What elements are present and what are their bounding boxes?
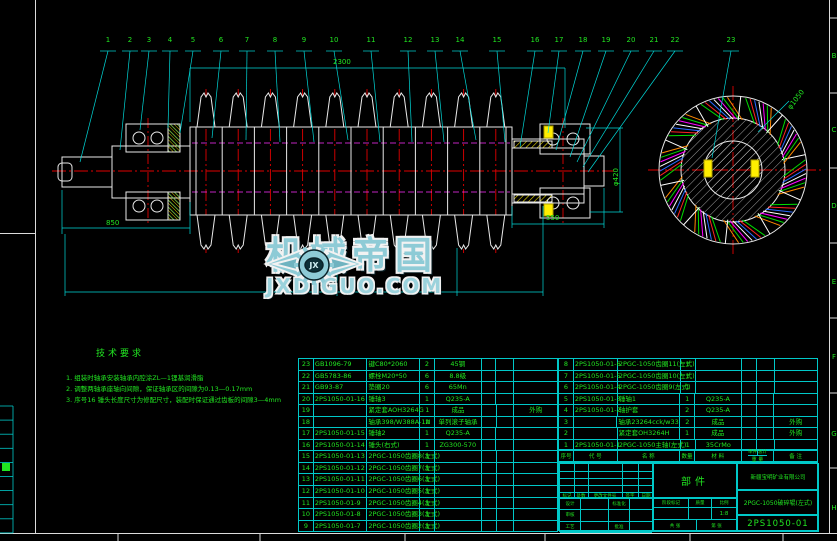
bom-cell-no: 19 (299, 405, 314, 416)
bom-cell-name: 2PGC-1050齿圈5(左式) (367, 486, 420, 497)
bom-cell-name: 2PGC-1050齿圈9(左式) (618, 382, 681, 393)
bom-row: 21GB93-87垫圈20665Mn (299, 382, 557, 394)
bom-cell-material: 45钢 (435, 359, 482, 370)
bom-cell-w1 (482, 463, 497, 474)
bom-cell-w1 (742, 394, 757, 405)
bom-row: 23GB1096-79键C80*2060245钢 (299, 359, 557, 371)
bom-cell-code: GB93-87 (314, 382, 368, 393)
bom-cell-name: 轴承398/W388A-1N (367, 417, 420, 428)
bom-cell-qty: 1 (420, 509, 435, 520)
bom-cell-w2 (497, 451, 515, 462)
bom-cell-no: 21 (299, 382, 314, 393)
bom-cell-qty: 1 (420, 498, 435, 509)
bom-table-left: 23GB1096-79键C80*2060245钢22GB5783-86螺栓M20… (298, 358, 558, 532)
bom-header-row: 序号 代 号 名 称 数量 材 料 单件 总计 重 量 备 注 (558, 450, 818, 462)
drawing-number: 2PS1050-01 (737, 515, 819, 532)
bom-cell-w2 (497, 474, 515, 485)
bom-cell-w2 (497, 498, 515, 509)
bom-cell-code: 2PS1050-01-14 (314, 440, 368, 451)
bom-cell-code: 2PS1050-01-9 (314, 498, 367, 509)
bom-cell-material (696, 382, 742, 393)
bom-cell-code: 2PS1050-01-16 (314, 394, 368, 405)
bom-row: 18轴承398/W388A-1N2单列滚子轴承 (299, 417, 557, 429)
bom-header-weight: 单件 总计 重 量 (742, 451, 775, 461)
bom-row: 82PS1050-01-62PGC-1050齿圈11(左式)1 (559, 359, 817, 371)
bom-cell-qty: 1 (681, 382, 696, 393)
bom-header-material: 材 料 (695, 451, 742, 461)
bom-cell-remark (514, 359, 557, 370)
bom-cell-name: 紧定套OH3264H (618, 428, 681, 439)
bom-cell-w2 (497, 405, 515, 416)
bom-cell-code: 2PS1050-01-5 (574, 371, 618, 382)
bom-cell-name: 2PGC-1050齿圈4(左式) (367, 498, 420, 509)
bom-cell-no: 7 (559, 371, 574, 382)
bom-cell-qty: 1 (420, 486, 435, 497)
bom-cell-qty: 1 (681, 371, 696, 382)
scale-value: 1:8 (712, 508, 736, 519)
bom-cell-no: 3 (559, 417, 574, 428)
bom-cell-remark (514, 440, 557, 451)
bom-cell-qty: 1 (420, 474, 435, 485)
dim-left-span: 850 (106, 219, 119, 227)
bom-cell-w1 (482, 394, 497, 405)
watermark: JX 机械帝国 JXDIGUO.COM (262, 234, 443, 296)
bom-row: 42PS1050-01-2轴护套2Q235-A (559, 405, 817, 417)
bom-cell-w1 (482, 474, 497, 485)
bom-row: 142PS1050-01-122PGC-1050齿圈7(左式)1 (299, 463, 557, 475)
balloon-number: 11 (364, 36, 378, 44)
bom-cell-remark (775, 359, 817, 370)
bom-cell-code: GB5783-86 (314, 371, 368, 382)
bom-cell-name: 2PGC-1050齿圈2(左式) (367, 521, 420, 533)
sign-label: 设计 (560, 499, 581, 509)
bom-cell-no: 8 (559, 359, 574, 370)
bom-cell-name: 2PGC-1050齿圈7(左式) (367, 463, 420, 474)
bom-cell-remark (774, 394, 817, 405)
bom-cell-no: 14 (299, 463, 314, 474)
bom-cell-qty: 2 (420, 417, 435, 428)
bom-cell-code: 2PS1050-01-10 (314, 486, 367, 497)
bom-row: 172PS1050-01-15锤轴21Q235-A (299, 428, 557, 440)
bom-header-no: 序号 (559, 451, 574, 461)
bom-cell-name: 垫圈20 (367, 382, 420, 393)
bom-cell-material (696, 371, 742, 382)
bom-cell-material: 8.8级 (435, 371, 482, 382)
balloon-number: 14 (453, 36, 467, 44)
balloon-number: 22 (668, 36, 682, 44)
drawing-title: 2PGC-1050破碎辊(左式) (737, 490, 819, 515)
zone-letter: C (830, 126, 837, 134)
bom-cell-w2 (496, 382, 514, 393)
technical-notes-title: 技术要求 (96, 346, 281, 359)
bom-cell-w2 (757, 382, 775, 393)
bom-cell-name: 螺栓M20*50 (367, 371, 420, 382)
bom-row: 62PS1050-01-42PGC-1050齿圈9(左式)1 (559, 382, 817, 394)
bom-cell-w2 (496, 428, 514, 439)
stage-label: 阶段标记 (654, 499, 689, 507)
bom-cell-w2 (497, 417, 515, 428)
bom-cell-remark (514, 486, 557, 497)
bom-row: 112PS1050-01-92PGC-1050齿圈4(左式)1 (299, 498, 557, 510)
sign-label: 工艺 (560, 522, 581, 532)
balloon-number: 21 (647, 36, 661, 44)
bom-cell-qty: 1 (420, 440, 435, 451)
bom-row: 202PS1050-01-16锤轴31Q235-A (299, 394, 557, 406)
zone-letter: F (830, 353, 837, 361)
bom-cell-material: 单列滚子轴承 (435, 417, 482, 428)
bom-cell-name: 2PGC-1050齿圈11(左式) (618, 359, 681, 370)
bom-cell-qty: 2 (420, 359, 435, 370)
bom-row: 152PS1050-01-132PGC-1050齿圈8(左式)1 (299, 451, 557, 463)
bom-cell-no: 18 (299, 417, 314, 428)
bom-cell-code: 2PS1050-01-8 (314, 509, 367, 520)
sheet-number: 第 张 (697, 520, 736, 532)
bom-cell-material: Q235-A (695, 405, 742, 416)
bom-cell-code: 2PS1050-01-11 (314, 474, 367, 485)
bom-cell-material (435, 498, 482, 509)
zone-letter: H (830, 504, 837, 512)
bom-cell-code: 2PS1050-01-13 (314, 451, 367, 462)
technical-notes: 技术要求 1. 组装时轴承安装轴承内腔涂ZL—1锂基润滑脂2. 调整两轴承座轴向… (66, 346, 281, 406)
bom-cell-name: 锤轴3 (367, 394, 420, 405)
balloon-number: 4 (163, 36, 177, 44)
bom-cell-material: 成品 (695, 417, 742, 428)
bom-cell-name: 锤轴1 (618, 394, 680, 405)
bom-cell-material (435, 463, 482, 474)
bom-header-weight-total: 总计 (758, 449, 767, 455)
balloon-number: 8 (268, 36, 282, 44)
bom-cell-code: 2PS1050-01-3 (574, 394, 618, 405)
bom-cell-remark (514, 498, 557, 509)
bom-cell-w2 (497, 486, 515, 497)
bom-cell-remark (514, 474, 557, 485)
bom-cell-material: 成品 (695, 428, 742, 439)
bom-cell-w2 (497, 509, 515, 520)
bom-cell-w1 (482, 417, 497, 428)
bom-row: 52PS1050-01-3锤轴11Q235-A (559, 394, 817, 406)
bom-cell-w1 (482, 509, 497, 520)
bom-cell-w2 (497, 463, 515, 474)
bom-cell-w1 (482, 382, 497, 393)
bom-cell-code: 2PS1050-01-7 (314, 521, 367, 533)
bom-cell-w1 (482, 359, 497, 370)
bom-cell-remark: 外购 (514, 405, 557, 416)
bom-cell-qty: 2 (680, 405, 695, 416)
bom-cell-material: 成品 (435, 405, 482, 416)
dim-overall-top: 2300 (333, 58, 351, 66)
bom-cell-w1 (482, 451, 497, 462)
bom-cell-no: 10 (299, 509, 314, 520)
bom-cell-w2 (757, 405, 775, 416)
bom-cell-material (435, 474, 482, 485)
balloon-number: 17 (552, 36, 566, 44)
bom-cell-no: 11 (299, 498, 314, 509)
dim-right-diameter: φ420 (612, 168, 620, 186)
bom-cell-w2 (757, 428, 775, 439)
bom-header-remark: 备 注 (774, 451, 817, 461)
bom-cell-remark (514, 509, 557, 520)
bom-cell-name: 2PGC-1050齿圈10(左式) (618, 371, 681, 382)
bom-cell-code: 2PS1050-01-2 (574, 405, 618, 416)
bom-cell-no: 2 (559, 428, 574, 439)
signature-grid: 设计标准化审核工艺批准 (559, 498, 653, 532)
bom-cell-no: 5 (559, 394, 574, 405)
bom-cell-qty: 6 (420, 382, 435, 393)
sign-label (609, 510, 630, 520)
bom-cell-w1 (742, 371, 757, 382)
bom-cell-w2 (757, 371, 775, 382)
bom-header-code: 代 号 (574, 451, 618, 461)
bom-cell-name: 紧定套AOH3264G (367, 405, 420, 416)
bom-row: 162PS1050-01-14锤头(右式)1ZG300-570 (299, 440, 557, 452)
bom-cell-remark (514, 428, 557, 439)
bom-cell-code (314, 417, 367, 428)
left-margin-mark (2, 463, 10, 471)
bom-row: 3轴承23264cck/w332成品外购 (559, 417, 817, 429)
bom-cell-w1 (482, 428, 497, 439)
bom-row: 122PS1050-01-102PGC-1050齿圈5(左式)1 (299, 486, 557, 498)
bom-cell-material (435, 509, 482, 520)
bom-cell-no: 13 (299, 474, 314, 485)
bom-cell-no: 20 (299, 394, 314, 405)
bom-cell-name: 轴承23264cck/w33 (617, 417, 680, 428)
bom-cell-no: 17 (299, 428, 314, 439)
part-type-label: 部件 (653, 463, 737, 498)
bom-cell-qty: 1 (420, 463, 435, 474)
balloon-number: 9 (297, 36, 311, 44)
bom-cell-no: 22 (299, 371, 314, 382)
bom-cell-remark: 外购 (774, 428, 817, 439)
bom-cell-w2 (497, 521, 515, 533)
bom-row: 92PS1050-01-72PGC-1050齿圈2(左式)1 (299, 521, 557, 533)
bom-cell-w1 (742, 405, 757, 416)
bom-cell-qty: 1 (680, 428, 695, 439)
bom-cell-name: 锤头(右式) (367, 440, 420, 451)
balloon-number: 18 (576, 36, 590, 44)
bom-cell-name: 锤轴2 (367, 428, 420, 439)
bom-cell-remark (514, 463, 557, 474)
bom-header-name: 名 称 (618, 451, 681, 461)
bom-cell-remark (775, 382, 817, 393)
watermark-logo-gear-wings-icon: JX (262, 234, 366, 298)
bom-cell-w2 (496, 440, 514, 451)
bom-cell-remark (514, 521, 557, 533)
bom-cell-name: 轴护套 (618, 405, 680, 416)
bom-cell-code: GB1096-79 (314, 359, 368, 370)
watermark-monogram: JX (308, 261, 319, 270)
bom-cell-w2 (496, 371, 514, 382)
bom-row: 19紧定套AOH3264G1成品外购 (299, 405, 557, 417)
bom-cell-qty: 6 (420, 371, 435, 382)
bom-cell-w2 (496, 359, 514, 370)
bom-cell-qty: 1 (420, 451, 435, 462)
bom-header-qty: 数量 (680, 451, 695, 461)
balloon-number: 16 (528, 36, 542, 44)
bom-cell-remark (775, 371, 817, 382)
bom-cell-no: 16 (299, 440, 314, 451)
bom-cell-w1 (482, 440, 497, 451)
bom-cell-code: 2PS1050-01-12 (314, 463, 367, 474)
bom-cell-remark (514, 417, 557, 428)
bom-cell-code (574, 428, 618, 439)
bom-cell-w1 (482, 405, 497, 416)
bom-cell-no: 6 (559, 382, 574, 393)
bom-row: 72PS1050-01-52PGC-1050齿圈10(左式)1 (559, 371, 817, 383)
bom-cell-name: 键C80*2060 (367, 359, 420, 370)
bom-cell-code: 2PS1050-01-15 (314, 428, 368, 439)
bom-cell-w2 (757, 394, 775, 405)
bom-cell-name: 2PGC-1050齿圈8(左式) (367, 451, 420, 462)
bom-cell-material (435, 451, 482, 462)
sign-label: 批准 (609, 522, 630, 532)
bom-header-weight-unit: 单件 (748, 449, 758, 455)
balloon-number: 7 (240, 36, 254, 44)
balloon-number: 3 (142, 36, 156, 44)
zone-letter: E (830, 278, 837, 286)
sign-label: 审核 (560, 510, 581, 520)
bom-cell-remark: 外购 (774, 417, 817, 428)
bom-cell-no: 15 (299, 451, 314, 462)
bom-cell-remark (514, 394, 557, 405)
stage-grid: 阶段标记 质量 比例 1:8 共 张 第 张 (653, 498, 737, 532)
sign-label: 标准化 (609, 499, 630, 509)
balloon-number: 5 (186, 36, 200, 44)
technical-note-item: 2. 调整两轴承座轴向间隙，保证轴承区的间隙为0.13—0.17mm (66, 384, 281, 395)
balloon-number: 6 (214, 36, 228, 44)
bom-cell-w1 (482, 486, 497, 497)
bom-cell-qty: 2 (680, 417, 695, 428)
bom-cell-no: 9 (299, 521, 314, 533)
balloon-number: 15 (490, 36, 504, 44)
bom-cell-w1 (742, 428, 757, 439)
bom-cell-w1 (742, 417, 757, 428)
bom-cell-code (314, 405, 367, 416)
balloon-number: 10 (327, 36, 341, 44)
balloon-number: 20 (624, 36, 638, 44)
bom-cell-w1 (742, 382, 757, 393)
bom-cell-remark (514, 371, 557, 382)
cad-sheet: JX 机械帝国 JXDIGUO.COM 技术要求 1. 组装时轴承安装轴承内腔涂… (0, 0, 837, 541)
revision-grid: 标记处数更改文件号签字日期 (559, 463, 653, 498)
balloon-number: 12 (401, 36, 415, 44)
bom-cell-qty: 1 (420, 405, 435, 416)
balloon-number: 19 (599, 36, 613, 44)
balloon-number: 23 (724, 36, 738, 44)
sheet-total: 共 张 (654, 520, 697, 532)
bom-cell-material (435, 486, 482, 497)
bom-cell-qty: 1 (420, 394, 435, 405)
bom-cell-qty: 1 (420, 521, 435, 533)
bom-cell-w2 (757, 417, 775, 428)
technical-note-item: 3. 序号16 锤头长度尺寸为修配尺寸，装配时保证通过齿板的间隙3—4mm (66, 395, 281, 406)
bom-cell-qty: 1 (680, 394, 695, 405)
bom-cell-no: 12 (299, 486, 314, 497)
bom-cell-remark (774, 405, 817, 416)
bom-cell-w1 (482, 371, 497, 382)
bom-cell-code (574, 417, 618, 428)
bom-table-right: 82PS1050-01-62PGC-1050齿圈11(左式)172PS1050-… (558, 358, 818, 450)
bom-row: 102PS1050-01-82PGC-1050齿圈3(左式)1 (299, 509, 557, 521)
bom-cell-material: Q235-A (435, 394, 482, 405)
bom-cell-material: ZG300-570 (435, 440, 482, 451)
balloon-number: 1 (101, 36, 115, 44)
technical-note-item: 1. 组装时轴承安装轴承内腔涂ZL—1锂基润滑脂 (66, 373, 281, 384)
zone-letter: D (830, 202, 837, 210)
bom-cell-remark (514, 451, 557, 462)
company-name: 新疆宝明矿业有限公司 (737, 463, 819, 490)
bom-cell-name: 2PGC-1050齿圈3(左式) (367, 509, 420, 520)
bom-cell-qty: 1 (681, 359, 696, 370)
bom-cell-material (696, 359, 742, 370)
balloon-number: 13 (428, 36, 442, 44)
balloon-number: 2 (123, 36, 137, 44)
bom-cell-w1 (482, 521, 497, 533)
title-block: 标记处数更改文件号签字日期 设计标准化审核工艺批准 部件 阶段标记 质量 比例 … (558, 462, 818, 531)
bom-cell-no: 23 (299, 359, 314, 370)
weight-label: 质量 (689, 499, 712, 507)
bom-cell-material: 65Mn (435, 382, 482, 393)
bom-cell-w1 (742, 359, 757, 370)
bom-cell-w2 (496, 394, 514, 405)
bom-row: 2紧定套OH3264H1成品外购 (559, 428, 817, 440)
bom-cell-code: 2PS1050-01-6 (574, 359, 618, 370)
bom-cell-w2 (757, 359, 775, 370)
dim-right-span: 550 (546, 214, 559, 222)
bom-cell-material: Q235-A (435, 428, 482, 439)
zone-letter: B (830, 52, 837, 60)
bom-cell-no: 4 (559, 405, 574, 416)
bom-cell-code: 2PS1050-01-4 (574, 382, 618, 393)
bom-row: 22GB5783-86螺栓M20*5068.8级 (299, 371, 557, 383)
bom-cell-name: 2PGC-1050齿圈6(左式) (367, 474, 420, 485)
bom-cell-qty: 1 (420, 428, 435, 439)
bom-row: 132PS1050-01-112PGC-1050齿圈6(左式)1 (299, 474, 557, 486)
bom-cell-material (435, 521, 482, 533)
bom-cell-remark (514, 382, 557, 393)
scale-label: 比例 (712, 499, 736, 507)
zone-letter: G (830, 430, 837, 438)
bom-cell-material: Q235-A (695, 394, 742, 405)
bom-cell-w1 (482, 498, 497, 509)
